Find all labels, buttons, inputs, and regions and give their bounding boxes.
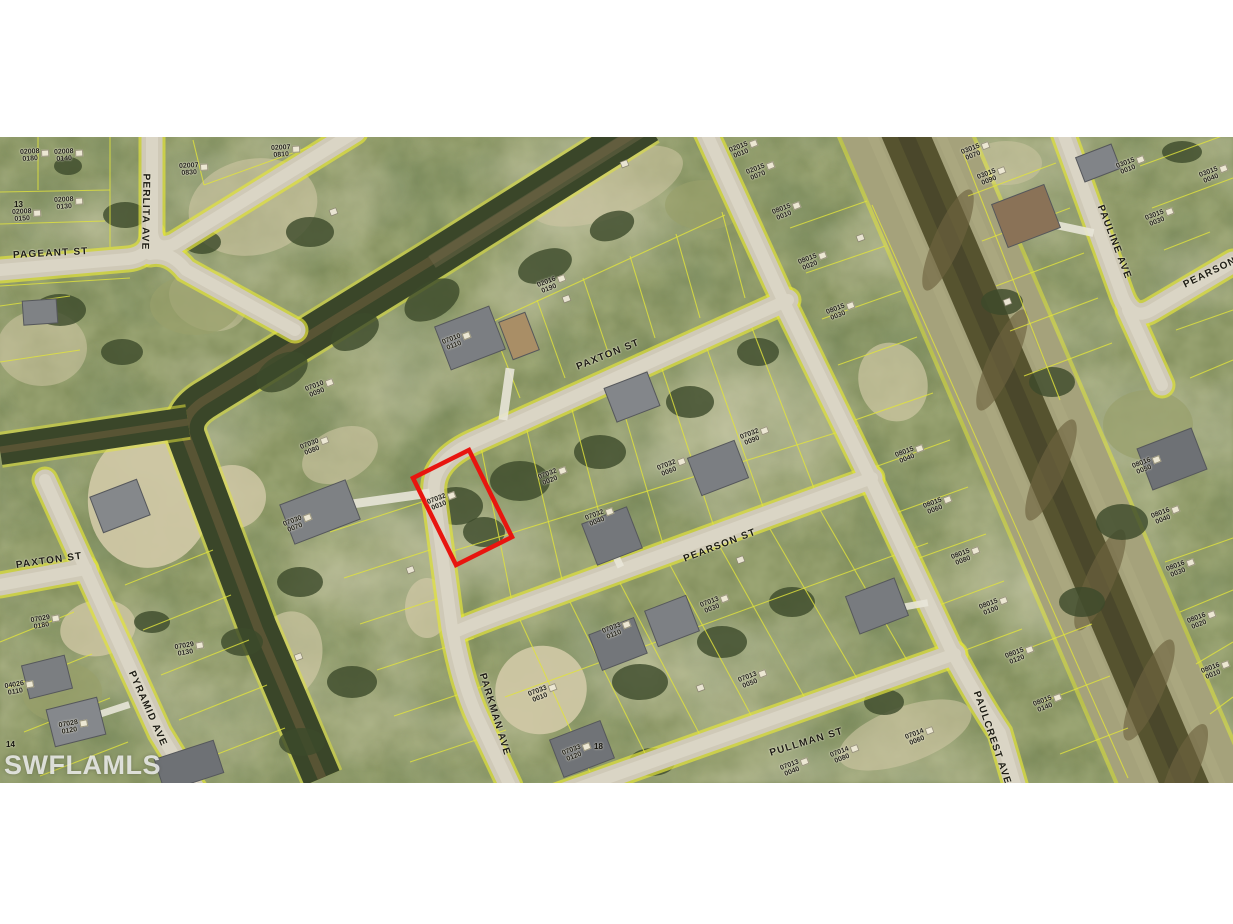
parcel-marker-box (33, 209, 41, 216)
parcel-label: 020070830 (179, 163, 199, 177)
parcel-label: 020080150 (12, 209, 32, 223)
parcel-label: 020080180 (20, 149, 40, 163)
parcel-marker-box (200, 163, 208, 170)
top-margin (0, 0, 1233, 137)
mls-aerial-map-screenshot: PAGEANT STPERLITA AVEPAXTON STPYRAMID AV… (0, 0, 1233, 924)
parcel-marker-box (41, 149, 49, 156)
parcel-label: 020070810 (271, 145, 291, 159)
lot-number: 13 (14, 200, 23, 209)
lot-number: 14 (6, 740, 15, 749)
parcel-marker-box (75, 197, 83, 204)
parcel-marker-box (75, 149, 83, 156)
parcel-marker-box (80, 719, 89, 727)
mls-watermark: SWFLAMLS (4, 750, 161, 781)
bottom-margin (0, 783, 1233, 924)
parcel-marker-box (196, 641, 205, 649)
lot-number: 18 (594, 742, 603, 751)
parcel-marker-box (292, 145, 300, 152)
parcel-marker-box (52, 614, 61, 622)
parcel-label: 020080140 (54, 149, 74, 163)
parcel-label: 020080130 (54, 197, 74, 211)
parcel-marker-box (26, 680, 35, 688)
street-label: PERLITA AVE (139, 173, 151, 250)
